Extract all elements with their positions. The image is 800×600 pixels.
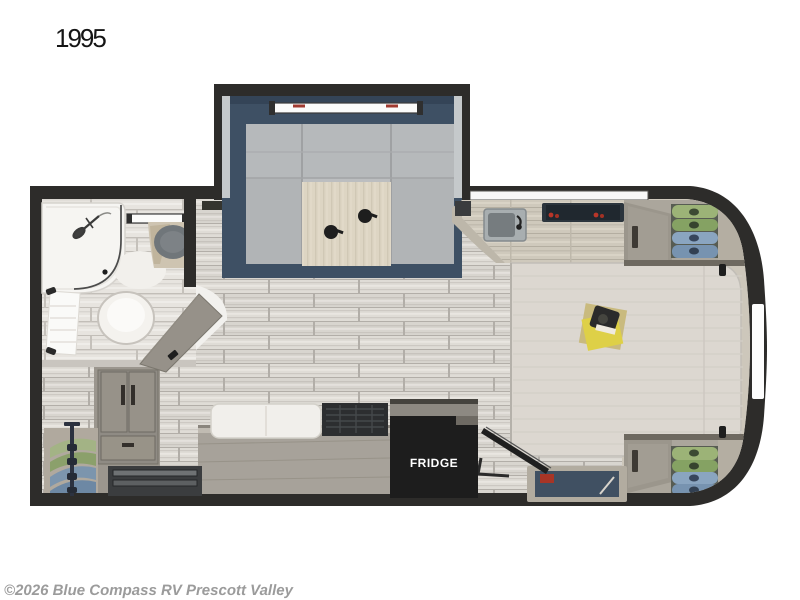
svg-text:©2026 Blue Compass RV Prescott: ©2026 Blue Compass RV Prescott Valley <box>4 582 294 599</box>
svg-text:FRIDGE: FRIDGE <box>410 456 458 470</box>
svg-text:1995: 1995 <box>55 23 106 53</box>
